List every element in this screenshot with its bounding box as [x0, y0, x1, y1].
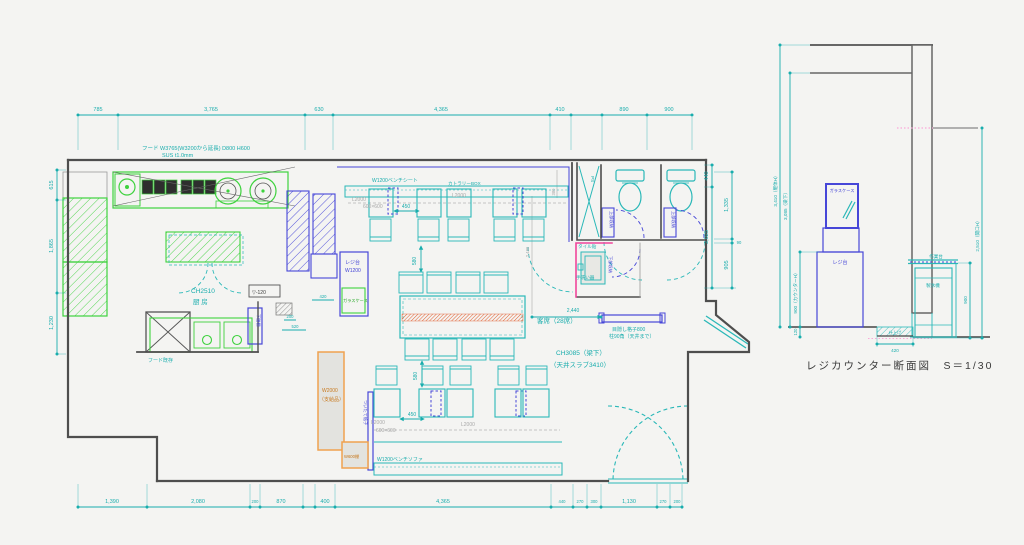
- kitchen-name-label: 厨 房: [193, 297, 208, 306]
- dim-top-5: 890: [619, 107, 628, 113]
- ghost-l2000-c: L2000: [371, 420, 385, 426]
- section-dim-lines: [780, 45, 984, 347]
- lower-storage-label: 下部収納: [607, 256, 614, 273]
- ghost-600-b: 600×600: [376, 428, 396, 434]
- blue-hatch-wall-a: [287, 191, 309, 271]
- blue-hatch-wall-b: [313, 194, 335, 254]
- dim-top-6: 900: [664, 107, 673, 113]
- ps-label: PS: [590, 176, 595, 182]
- dim-left-2: 1,230: [49, 316, 55, 330]
- chairs-center-bottom: [405, 339, 514, 360]
- upper-storage-label-2: 上部収納: [670, 211, 677, 228]
- section-dim-work-h: 900: [963, 296, 968, 304]
- ghost-l2000-b: L2000: [452, 193, 466, 199]
- register-label: レジ台: [345, 259, 360, 266]
- dim-bottom-8: 300: [591, 499, 599, 504]
- bench-bottom-band: [374, 463, 562, 475]
- dim-right-inner-0: 440: [704, 171, 710, 180]
- section-view: 3,410（躯体H） 3,085（梁下） 900（カウンターH） 120 2,5…: [772, 44, 993, 373]
- work-table: [166, 232, 240, 262]
- section-worktable-label: 作業台: [929, 253, 943, 260]
- extension-lines: [57, 117, 736, 509]
- dim-bottom-4: 400: [320, 499, 329, 505]
- section-finish-label: 仕上げ: [889, 329, 902, 336]
- chairs-center-top: [399, 272, 508, 293]
- section-register-label: レジ台: [832, 259, 847, 266]
- dim-top-0: 785: [93, 107, 102, 113]
- glass-pane: [843, 201, 855, 219]
- tile-label: タイル貼: [578, 243, 597, 250]
- dim-2440: 2,440: [567, 308, 580, 314]
- dim-450-bottom: 450: [408, 412, 417, 418]
- dim-580-top: 580: [412, 257, 418, 266]
- angled-door-leaf: [704, 316, 748, 348]
- section-dim-recess: 420: [891, 348, 899, 353]
- entry-hardware: [608, 316, 748, 483]
- dim-bottom-11: 200: [674, 499, 682, 504]
- register-width-label: W1200: [345, 268, 361, 274]
- entry-door-leaf-1: [608, 406, 683, 481]
- upper-storage-label-1: 上部収納: [608, 211, 615, 228]
- dim-right-inner-1: 2,025: [704, 230, 710, 244]
- handwash-label: 手洗い器: [576, 274, 595, 281]
- dim-bottom-3: 870: [276, 499, 285, 505]
- toilet-block: [578, 166, 695, 284]
- chairs-top: [370, 219, 544, 241]
- green-shelf-lower: [63, 262, 107, 316]
- dim-420: 420: [320, 294, 328, 299]
- bench-bottom-label: W1200ベンチソファ: [377, 457, 423, 463]
- section-worktable: [908, 260, 958, 337]
- dim-top-3: 4,365: [434, 107, 448, 113]
- bench-dividers: [388, 188, 526, 416]
- lower-shelf-label: 下膳棚: [255, 314, 262, 327]
- toilet2-door: [676, 210, 704, 238]
- dim-bottom-6: 440: [559, 499, 567, 504]
- dim-right-outer-1: 90: [737, 240, 742, 245]
- glass-case-label: ガラスケース: [343, 297, 368, 304]
- dim-bottom-1: 2,080: [191, 499, 205, 505]
- tables-bottom: [374, 389, 549, 417]
- toilet-1: [616, 170, 644, 211]
- section-register: [817, 184, 863, 327]
- supplied-note-label: （支給品）: [319, 396, 344, 403]
- entry-door-leaf-2: [613, 406, 688, 481]
- dim-bottom-9: 1,130: [622, 499, 636, 505]
- dim-580-bottom: 580: [413, 372, 419, 381]
- section-structure: [788, 45, 990, 339]
- section-title: レジカウンター断面図 S＝1/30: [806, 359, 993, 372]
- hood-label-1: フード W3765(W3200から延長) D800 H600: [142, 144, 250, 152]
- supplied-w-label: W2000: [322, 388, 338, 394]
- dim-bottom-0: 1,390: [105, 499, 119, 505]
- supplied-items: [318, 352, 368, 468]
- dim-bottom-2: 200: [252, 499, 260, 504]
- dim-380-ghost: 380: [551, 188, 556, 196]
- seats-label: 客席（28席）: [537, 316, 577, 325]
- handwash-door: [612, 249, 640, 277]
- dim-2480-ghost: 2,480: [525, 246, 530, 257]
- ghost-600-a: 600×600: [363, 204, 383, 210]
- dining-corridor-door: [528, 247, 573, 292]
- sink-unit: [146, 312, 252, 352]
- dim-right-outer-0: 1,335: [724, 198, 730, 212]
- dim-left-0: 615: [49, 180, 55, 189]
- dim-top-1: 3,765: [204, 107, 218, 113]
- ps-x: [579, 166, 599, 237]
- section-glass-case-label: ガラスケース: [830, 187, 855, 194]
- section-dim-counter-h: 900（カウンターH）: [792, 270, 799, 313]
- bench-top-label: W1200ベンチシート: [372, 178, 418, 184]
- floor-plan-svg: 785 3,765 630 4,365 410 890 900 615 1,86…: [0, 0, 1024, 545]
- dim-200: 200: [287, 314, 295, 319]
- section-dim-dots: [779, 44, 984, 346]
- section-dim-opening-h: 2,510（開口H）: [975, 218, 981, 251]
- corridor-door-2: [667, 242, 705, 280]
- chairs-bottom: [376, 366, 547, 385]
- louver-label-1: 目隠し格子800: [612, 326, 646, 333]
- dim-top-4: 410: [555, 107, 564, 113]
- dim-right-outer-2: 905: [724, 260, 730, 269]
- cad-drawing-canvas: 785 3,765 630 4,365 410 890 900 615 1,86…: [0, 0, 1024, 545]
- dim-520: 520: [292, 324, 300, 329]
- louver-bar: [602, 315, 662, 322]
- dim-bottom-7: 270: [577, 499, 585, 504]
- center-table-stripe: [402, 314, 523, 321]
- shelf-600-label: W600棚: [344, 453, 359, 460]
- section-dim-body-h: 3,410（躯体H）: [772, 173, 779, 206]
- ghost-l2000-a: L2000: [352, 197, 366, 203]
- section-dim-beam-h: 3,085（梁下）: [782, 190, 789, 220]
- door-swings: [178, 210, 705, 481]
- green-shelf-upper: [63, 198, 107, 262]
- ceiling-height-label: CH3085（梁下）: [556, 348, 606, 357]
- ghost-l2000-d: L2000: [461, 422, 475, 428]
- section-icemaker-label: 製氷機: [926, 282, 940, 289]
- toilet-2: [667, 170, 695, 211]
- toilet1-door: [616, 210, 644, 238]
- dim-top-2: 630: [314, 107, 323, 113]
- step-label: ▽-120: [252, 290, 266, 296]
- kitchen-ch-label: CH2510: [191, 288, 215, 295]
- dim-450-top: 450: [402, 204, 411, 210]
- wall-right: [688, 160, 749, 481]
- existing-hood-label: フード既存: [148, 357, 173, 364]
- section-dim-step: 120: [793, 328, 798, 336]
- partition-label: ついたて格子: [362, 400, 369, 425]
- louver-label-2: 柱90角（天井まで）: [609, 333, 655, 340]
- dim-bottom-5: 4,365: [436, 499, 450, 505]
- dim-bottom-10: 270: [660, 499, 668, 504]
- ceiling-slab-label: （天井スラブ3410）: [550, 360, 610, 369]
- hood-label-2: SUS t1.0mm: [162, 153, 194, 159]
- dim-left-1: 1,865: [49, 239, 55, 253]
